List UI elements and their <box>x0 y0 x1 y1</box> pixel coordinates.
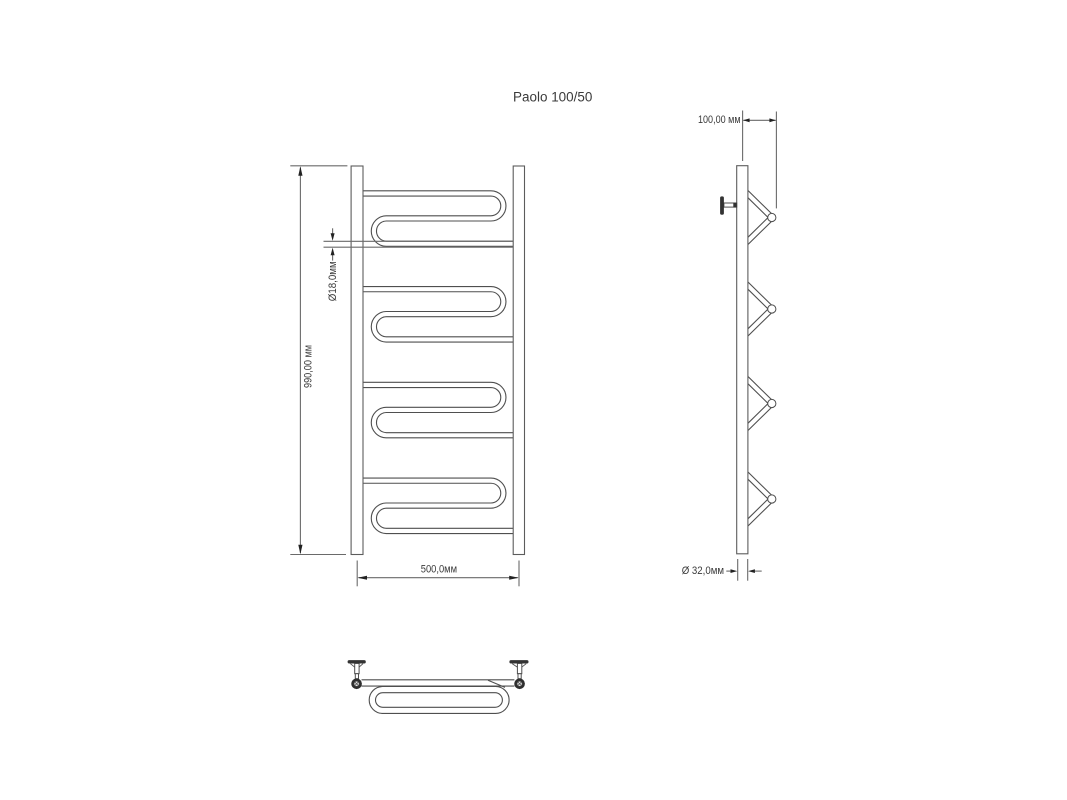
svg-text:Paolo 100/50: Paolo 100/50 <box>513 89 592 105</box>
svg-text:Ø 32,0мм: Ø 32,0мм <box>682 565 724 577</box>
svg-text:100,00 мм: 100,00 мм <box>698 114 741 126</box>
svg-text:Ø18,0мм: Ø18,0мм <box>327 261 339 301</box>
svg-text:990,00 мм: 990,00 мм <box>303 345 315 388</box>
svg-text:500,0мм: 500,0мм <box>421 564 457 576</box>
